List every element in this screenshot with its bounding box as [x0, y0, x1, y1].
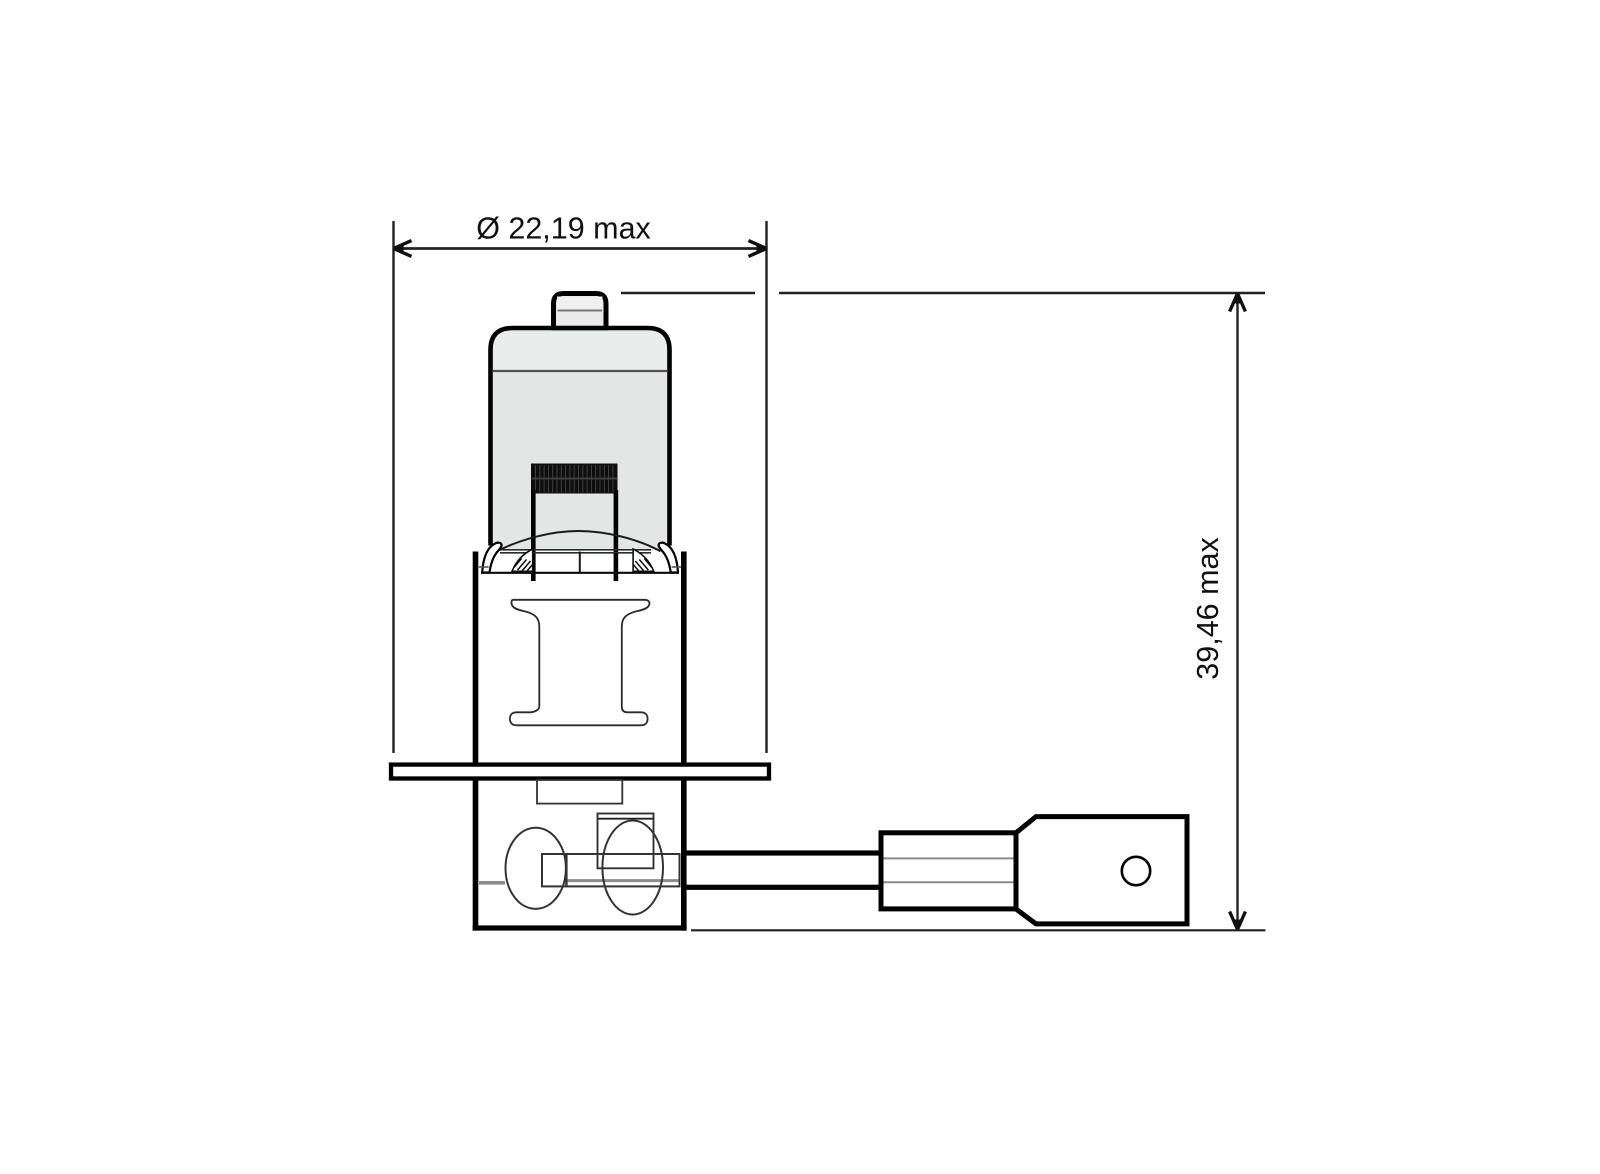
svg-text:Ø 22,19 max: Ø 22,19 max: [476, 212, 651, 246]
svg-text:39,46 max: 39,46 max: [1191, 537, 1225, 679]
